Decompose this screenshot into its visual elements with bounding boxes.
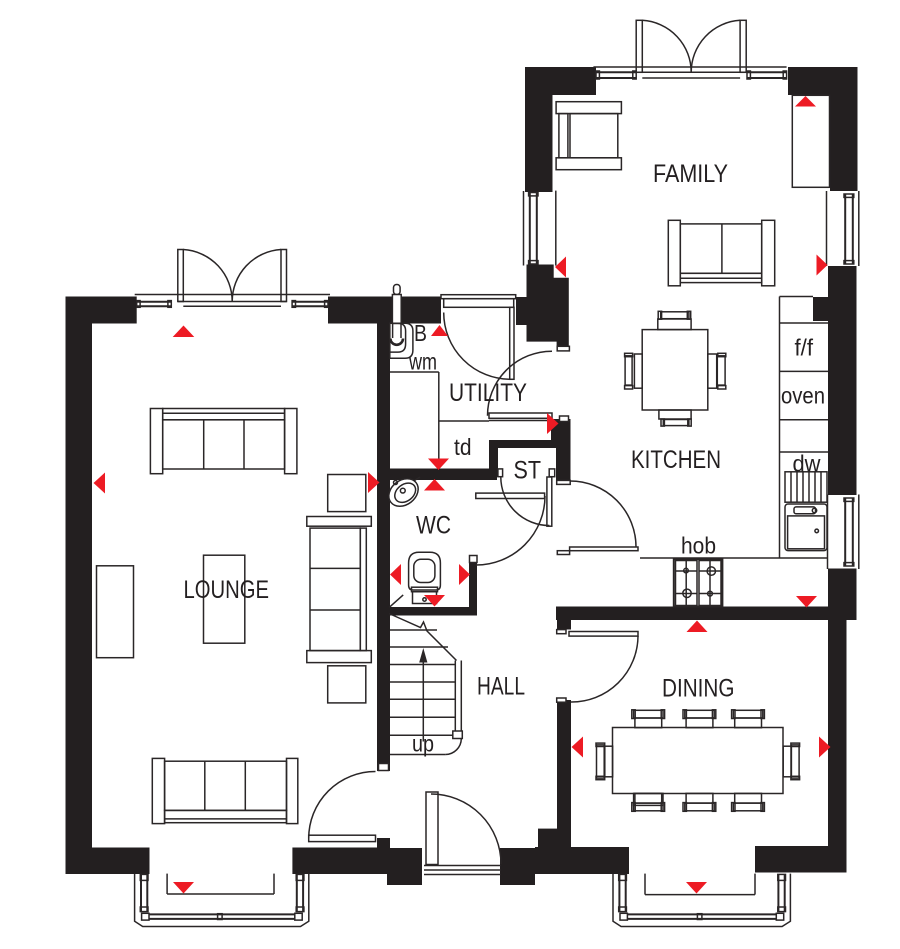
svg-text:up: up <box>412 731 434 757</box>
svg-text:td: td <box>454 434 472 460</box>
svg-text:f/f: f/f <box>795 335 814 361</box>
svg-text:FAMILY: FAMILY <box>653 160 728 188</box>
svg-text:KITCHEN: KITCHEN <box>631 446 721 474</box>
svg-text:hob: hob <box>681 533 716 559</box>
svg-text:dw: dw <box>793 451 821 477</box>
svg-text:WC: WC <box>416 512 451 540</box>
svg-text:LOUNGE: LOUNGE <box>184 576 270 604</box>
svg-text:B: B <box>414 320 427 346</box>
svg-text:ST: ST <box>514 457 542 485</box>
svg-text:UTILITY: UTILITY <box>449 379 527 407</box>
svg-text:wm: wm <box>408 349 437 375</box>
svg-text:oven: oven <box>781 383 825 409</box>
svg-text:DINING: DINING <box>662 675 735 703</box>
svg-text:HALL: HALL <box>477 673 525 701</box>
